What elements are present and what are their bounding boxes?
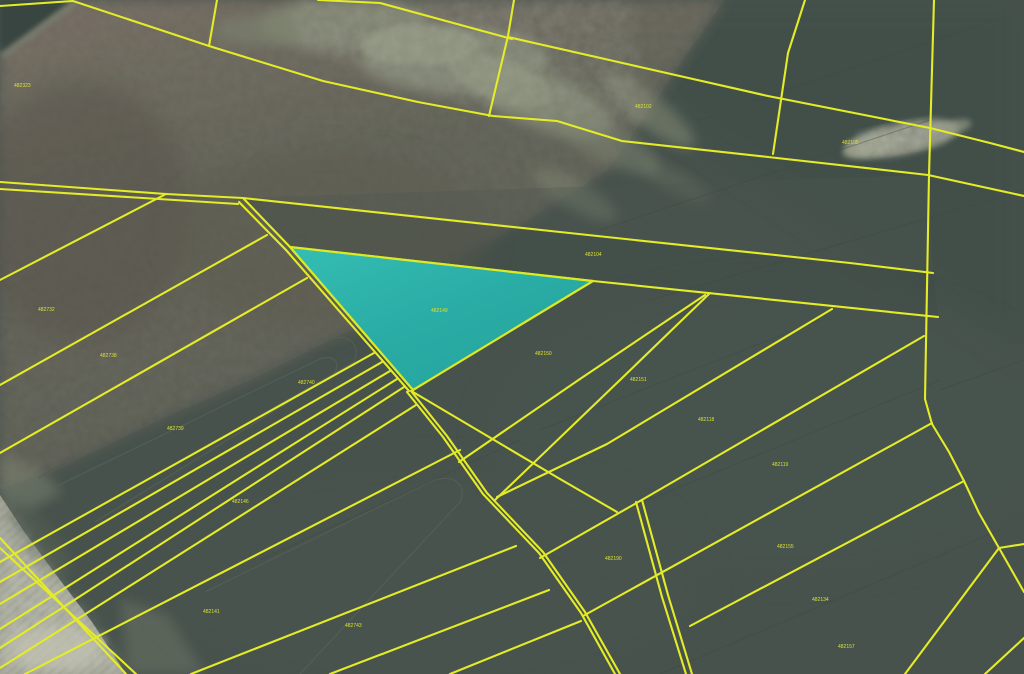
svg-text:482149: 482149 <box>431 308 448 314</box>
svg-text:482738: 482738 <box>100 353 117 359</box>
svg-text:482155: 482155 <box>777 544 794 550</box>
svg-text:482118: 482118 <box>698 417 715 423</box>
svg-text:482739: 482739 <box>167 426 184 432</box>
svg-text:482146: 482146 <box>232 499 249 505</box>
svg-text:482150: 482150 <box>535 351 552 357</box>
svg-text:482104: 482104 <box>585 252 602 258</box>
svg-text:482323: 482323 <box>14 83 31 89</box>
svg-text:482102: 482102 <box>635 104 652 110</box>
svg-text:482732: 482732 <box>38 307 55 313</box>
svg-text:482190: 482190 <box>605 556 622 562</box>
svg-text:482157: 482157 <box>838 644 855 650</box>
svg-text:482151: 482151 <box>630 377 647 383</box>
svg-text:482119: 482119 <box>772 462 789 468</box>
svg-text:482141: 482141 <box>203 609 220 615</box>
svg-text:482743: 482743 <box>345 623 362 629</box>
svg-text:482105: 482105 <box>842 140 859 146</box>
svg-text:482740: 482740 <box>298 380 315 386</box>
svg-text:482134: 482134 <box>812 597 829 603</box>
